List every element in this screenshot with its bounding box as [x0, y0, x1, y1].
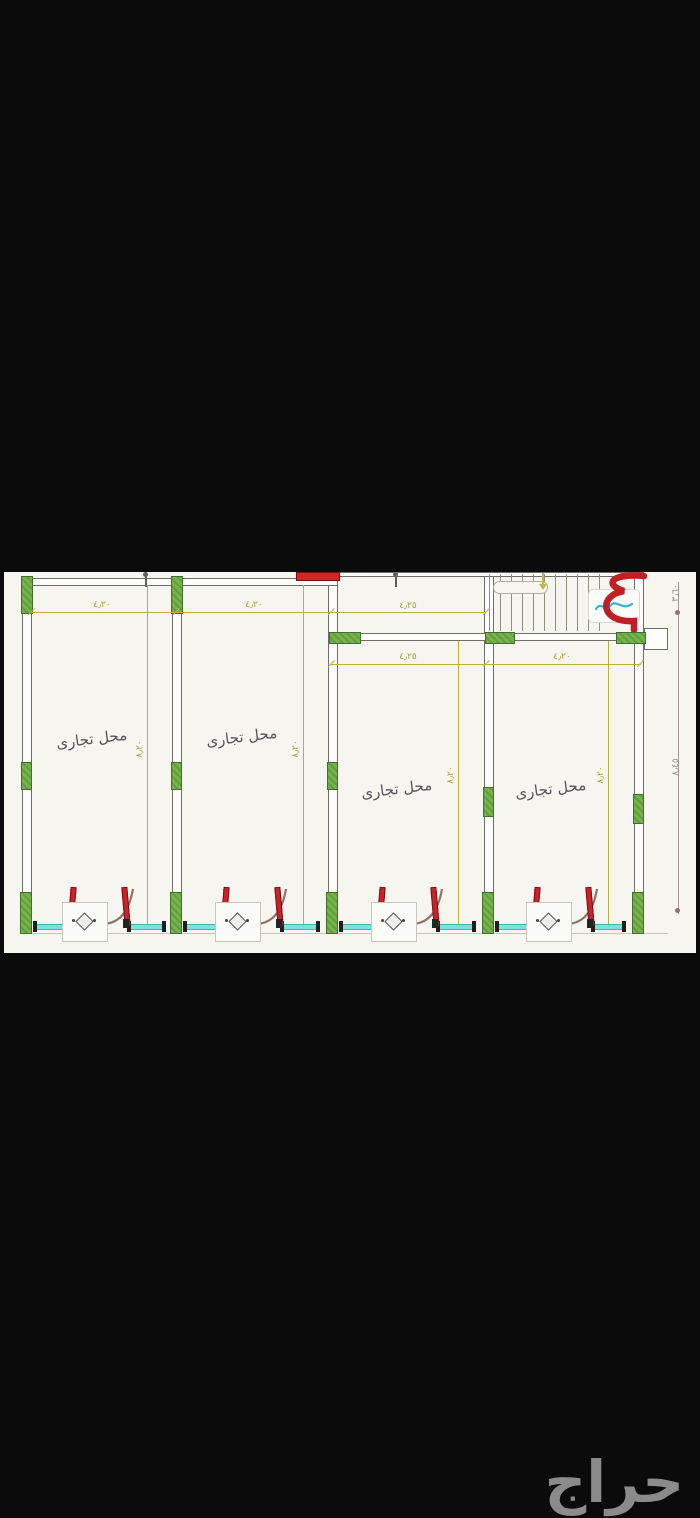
- door-tag-dot: [72, 919, 75, 922]
- dimension-label: ٤٫٢٠: [82, 600, 122, 610]
- wall-interior-a: [172, 578, 182, 934]
- dimension-label: ٨٫٤٥: [671, 747, 681, 787]
- wall-left: [22, 578, 32, 934]
- dimension-line-h1: [31, 612, 486, 613]
- floor-plan-canvas: ٤٫٢٠ ٤٫٢٠ ٤٫٢٥ ٤٫٢٥ ٤٫٢٠ ٨٫٢٠ ٨٫٢٠ ٨٫٢٠ …: [4, 572, 696, 953]
- glass-cap: [162, 921, 166, 932]
- dimension-label: ٤٫٢٥: [388, 652, 428, 662]
- haraj-watermark-logo: حراج: [544, 1448, 684, 1516]
- column: [633, 794, 644, 824]
- stair-tread: [489, 574, 490, 631]
- door-tag: [215, 902, 261, 942]
- dimension-line-v1: [147, 585, 148, 926]
- door-tag-diamond-icon: [539, 912, 557, 930]
- column: [21, 762, 32, 790]
- column: [482, 892, 494, 934]
- door-foot: [276, 919, 282, 928]
- door-tag-dot: [246, 919, 249, 922]
- wall-interior-b: [328, 572, 338, 934]
- stair-tread: [577, 574, 578, 631]
- shop-label-2: محل تجارى: [205, 724, 278, 751]
- staircase: [487, 572, 603, 633]
- shop-label-3: محل تجارى: [360, 776, 433, 803]
- dimension-label: ٨٫٢٠: [135, 729, 145, 769]
- column: [483, 787, 494, 817]
- column: [485, 632, 515, 644]
- glass-cap: [183, 921, 187, 932]
- dimension-label: ٨٫٢٠: [596, 755, 606, 795]
- door-tag: [371, 902, 417, 942]
- dimension-line-v3: [458, 641, 459, 926]
- dimension-label: ٨٫٢٠: [291, 729, 301, 769]
- door-tag: [526, 902, 572, 942]
- column: [632, 892, 644, 934]
- door-tag-diamond-icon: [75, 912, 93, 930]
- stair-direction-arrowhead: [539, 584, 547, 590]
- shop-label-1: محل تجارى: [55, 726, 128, 753]
- door-foot: [123, 919, 129, 928]
- column: [329, 632, 361, 644]
- dimension-line-v4: [608, 641, 609, 926]
- column: [327, 762, 338, 790]
- column: [170, 892, 182, 934]
- stair-tread: [555, 574, 556, 631]
- door-tag-diamond-icon: [228, 912, 246, 930]
- door-tag-dot: [536, 919, 539, 922]
- dimension-dot: [675, 908, 680, 913]
- door-tag-dot: [225, 919, 228, 922]
- shop-label-4: محل تجارى: [514, 776, 587, 803]
- top-tick-dot: [393, 572, 398, 577]
- top-tick-dot: [143, 572, 148, 577]
- stair-entry-door-swing-icon: [588, 572, 650, 632]
- stair-tread: [566, 574, 567, 631]
- dimension-label: ٤٫٢٥: [388, 601, 428, 611]
- door-tag-dot: [381, 919, 384, 922]
- glass-cap: [339, 921, 343, 932]
- column: [616, 632, 646, 644]
- door-tag-dot: [557, 919, 560, 922]
- dimension-label: ٤٫٢٠: [542, 652, 582, 662]
- red-beam-marker: [296, 572, 340, 581]
- glass-cap: [33, 921, 37, 932]
- dimension-label: ٤٫٢٠: [234, 600, 274, 610]
- glass-cap: [495, 921, 499, 932]
- door-foot: [587, 919, 593, 928]
- door-foot: [432, 919, 438, 928]
- door-tag-diamond-icon: [384, 912, 402, 930]
- door-tag-dot: [402, 919, 405, 922]
- glass-cap: [316, 921, 320, 932]
- glass-cap: [622, 921, 626, 932]
- column: [20, 892, 32, 934]
- door-tag: [62, 902, 108, 942]
- column: [326, 892, 338, 934]
- column: [21, 576, 33, 614]
- dimension-label: ٣٫٦٠: [671, 573, 681, 613]
- dimension-line-v2: [303, 585, 304, 926]
- glass-cap: [472, 921, 476, 932]
- door-tag-dot: [93, 919, 96, 922]
- dimension-label: ٨٫٢٠: [446, 755, 456, 795]
- column: [171, 762, 182, 790]
